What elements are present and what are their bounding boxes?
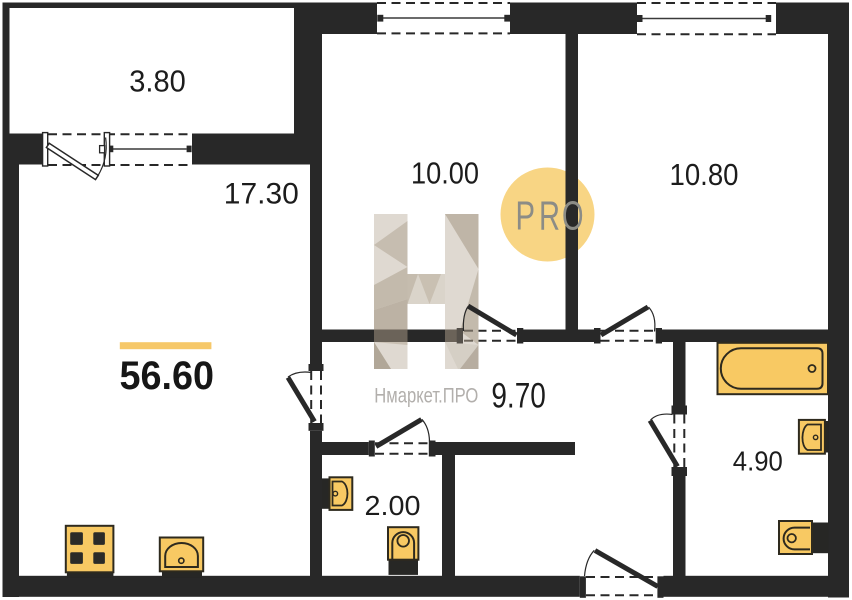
- svg-text:10.00: 10.00: [411, 156, 479, 191]
- svg-text:2.00: 2.00: [365, 490, 421, 521]
- svg-text:R: R: [539, 193, 560, 239]
- svg-text:17.30: 17.30: [224, 178, 299, 211]
- svg-text:P: P: [516, 193, 536, 239]
- svg-text:3.80: 3.80: [129, 64, 186, 99]
- svg-text:9.70: 9.70: [491, 376, 546, 416]
- svg-text:10.80: 10.80: [670, 157, 739, 192]
- svg-text:Нмаркет.ПРО: Нмаркет.ПРО: [374, 384, 478, 408]
- svg-text:56.60: 56.60: [120, 354, 215, 398]
- svg-text:4.90: 4.90: [733, 446, 783, 477]
- svg-text:O: O: [562, 193, 584, 239]
